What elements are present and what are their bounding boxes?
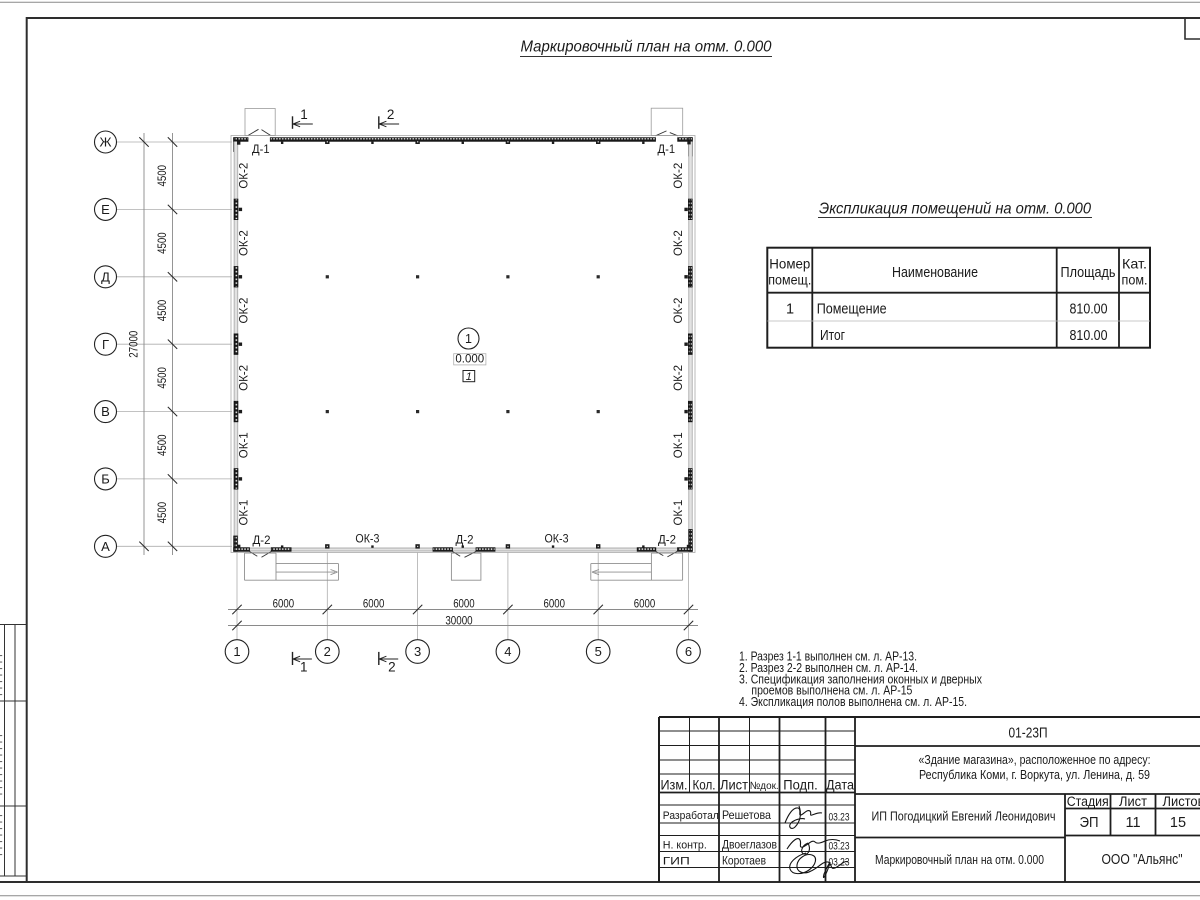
svg-text:Листов: Листов [1163, 794, 1200, 809]
svg-text:1: 1 [300, 107, 308, 122]
svg-text:Кат.: Кат. [1122, 256, 1147, 272]
svg-text:6000: 6000 [453, 598, 475, 610]
svg-text:Ж: Ж [99, 135, 111, 150]
svg-text:3: 3 [414, 644, 421, 659]
svg-text:ОК-2: ОК-2 [673, 365, 685, 391]
svg-text:Решетова: Решетова [722, 808, 771, 822]
svg-text:Лист: Лист [1119, 794, 1147, 809]
svg-text:Стадия: Стадия [1067, 794, 1109, 809]
svg-text:810.00: 810.00 [1070, 302, 1108, 318]
svg-text:4500: 4500 [157, 232, 169, 254]
svg-text:4500: 4500 [157, 367, 169, 389]
svg-text:Маркировочный план на отм. 0.0: Маркировочный план на отм. 0.000 [875, 853, 1044, 867]
svg-text:помещ.: помещ. [768, 272, 811, 288]
svg-text:1: 1 [466, 371, 472, 383]
svg-text:«Здание магазина», расположенн: «Здание магазина», расположенное по адре… [919, 752, 1151, 767]
svg-text:Д-2: Д-2 [253, 533, 271, 547]
svg-text:Итог: Итог [820, 328, 845, 344]
svg-text:27000: 27000 [129, 331, 141, 358]
svg-text:30000: 30000 [445, 615, 472, 627]
svg-text:Подп.: Подп. [783, 778, 818, 793]
svg-text:Д-2: Д-2 [658, 533, 676, 547]
svg-text:ОК-2: ОК-2 [239, 230, 251, 256]
svg-text:4. Экспликация полов выполнена: 4. Экспликация полов выполнена см. л. АР… [739, 694, 967, 709]
svg-text:6: 6 [685, 644, 692, 659]
svg-text:4500: 4500 [157, 502, 169, 524]
svg-text:2: 2 [324, 644, 331, 659]
svg-text:Г: Г [102, 337, 109, 352]
svg-text:6000: 6000 [273, 598, 295, 610]
svg-text:Лист: Лист [720, 778, 748, 793]
svg-text:1: 1 [300, 660, 308, 675]
svg-text:ОК-1: ОК-1 [239, 432, 251, 458]
svg-text:1: 1 [786, 302, 794, 318]
svg-text:6000: 6000 [634, 598, 656, 610]
svg-text:2: 2 [387, 107, 395, 122]
svg-text:Н. контр.: Н. контр. [663, 840, 707, 852]
svg-text:0.000: 0.000 [455, 354, 484, 366]
svg-text:6000: 6000 [363, 598, 385, 610]
svg-text:Маркировочный план на отм. 0.0: Маркировочный план на отм. 0.000 [521, 39, 772, 56]
svg-text:2: 2 [388, 660, 396, 675]
svg-text:Коротаев: Коротаев [722, 854, 766, 868]
svg-text:Д-1: Д-1 [252, 142, 270, 156]
svg-text:Д-1: Д-1 [658, 142, 676, 156]
svg-text:1: 1 [233, 644, 240, 659]
svg-text:ОК-2: ОК-2 [673, 230, 685, 256]
svg-text:Б: Б [101, 472, 110, 487]
svg-text:Номер: Номер [769, 256, 810, 272]
svg-text:15: 15 [1170, 815, 1186, 831]
svg-text:ОК-2: ОК-2 [673, 163, 685, 189]
svg-text:Дата: Дата [826, 778, 855, 793]
svg-text:ОК-2: ОК-2 [239, 298, 251, 324]
svg-text:ОК-2: ОК-2 [673, 298, 685, 324]
svg-text:Наименование: Наименование [892, 265, 978, 281]
svg-text:пом.: пом. [1122, 272, 1148, 288]
svg-text:5: 5 [595, 644, 602, 659]
svg-text:810.00: 810.00 [1070, 328, 1108, 344]
svg-text:Помещение: Помещение [817, 302, 887, 318]
svg-text:Экспликация помещений на отм.: Экспликация помещений на отм. 0.000 [819, 201, 1091, 218]
svg-text:Площадь: Площадь [1061, 265, 1116, 281]
svg-text:03.23: 03.23 [829, 841, 850, 853]
svg-text:№док.: №док. [750, 780, 779, 792]
svg-text:ОК-3: ОК-3 [355, 532, 379, 546]
svg-text:ОК-2: ОК-2 [239, 365, 251, 391]
svg-text:Двоеглазов: Двоеглазов [722, 838, 777, 852]
svg-text:01-23П: 01-23П [1009, 726, 1048, 742]
svg-text:Изм.: Изм. [661, 778, 688, 793]
svg-text:ОК-1: ОК-1 [673, 500, 685, 526]
svg-text:ГИП: ГИП [663, 856, 690, 868]
svg-text:03.23: 03.23 [829, 812, 850, 824]
svg-text:Е: Е [101, 202, 110, 217]
svg-text:4500: 4500 [157, 165, 169, 187]
svg-text:ОК-1: ОК-1 [673, 432, 685, 458]
svg-text:ЭП: ЭП [1080, 815, 1099, 831]
svg-text:ОК-2: ОК-2 [239, 163, 251, 189]
svg-text:4: 4 [504, 644, 511, 659]
svg-text:4500: 4500 [157, 435, 169, 457]
svg-text:6000: 6000 [544, 598, 566, 610]
svg-text:4500: 4500 [157, 300, 169, 322]
svg-text:Разработал: Разработал [663, 810, 719, 822]
svg-text:11: 11 [1125, 815, 1140, 831]
svg-text:ИП Погодицкий Евгений Леонидов: ИП Погодицкий Евгений Леонидович [872, 810, 1056, 824]
svg-text:ООО "Альянс": ООО "Альянс" [1102, 851, 1183, 868]
svg-text:Республика Коми, г. Воркута, у: Республика Коми, г. Воркута, ул. Ленина,… [919, 767, 1150, 782]
svg-text:ОК-3: ОК-3 [545, 532, 569, 546]
svg-text:Д: Д [101, 269, 110, 284]
svg-text:Д-2: Д-2 [456, 533, 474, 547]
svg-text:А: А [101, 539, 110, 554]
svg-text:Кол.: Кол. [693, 778, 716, 793]
svg-text:ОК-1: ОК-1 [239, 500, 251, 526]
svg-text:1: 1 [465, 332, 472, 346]
svg-text:В: В [101, 404, 110, 419]
